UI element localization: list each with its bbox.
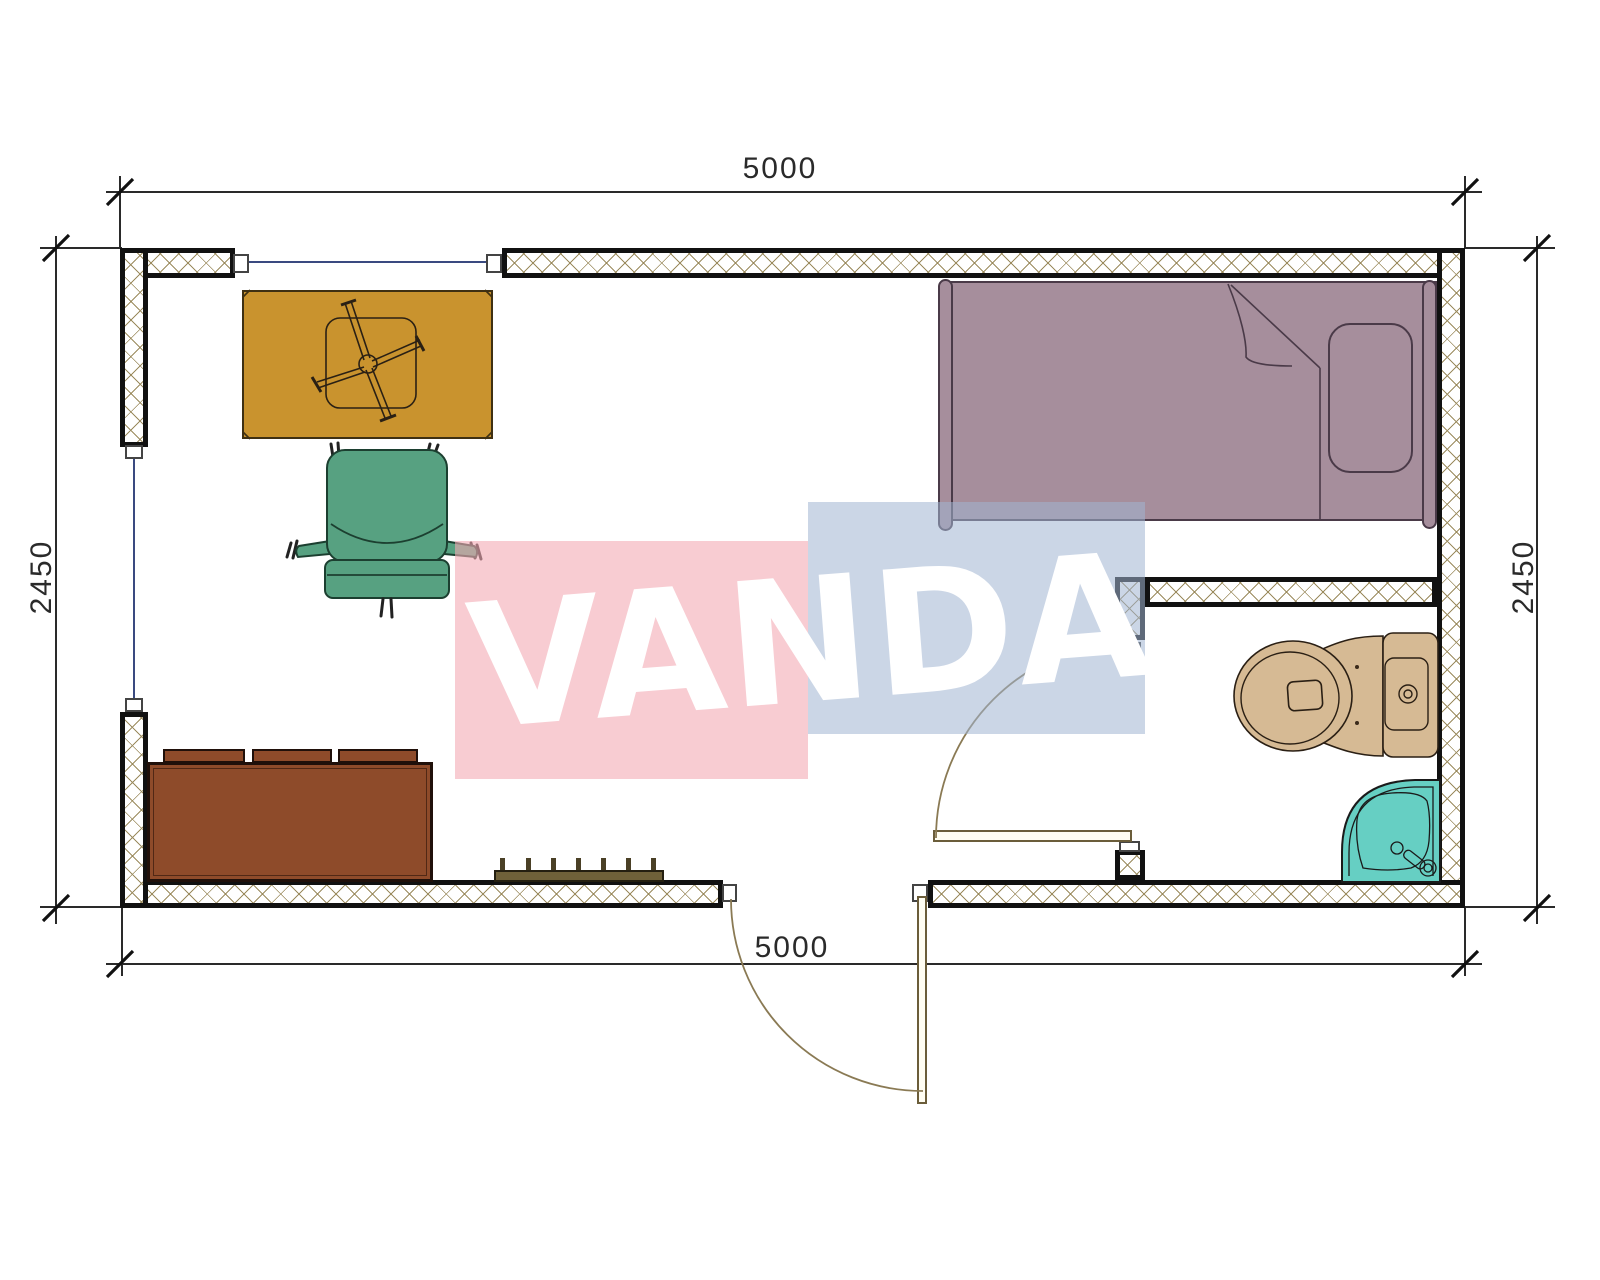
- bathroom-door-jamb: [1119, 841, 1140, 852]
- bathroom-door-leaf: [933, 830, 1132, 842]
- wall-right: [1437, 248, 1465, 908]
- extension-line: [1465, 906, 1555, 908]
- wall-bottom-right: [928, 880, 1465, 908]
- entry-door-leaf: [917, 896, 927, 1104]
- wall-left-lower: [120, 712, 148, 908]
- radiator-fin: [626, 858, 631, 870]
- desk-icon: [242, 290, 493, 439]
- extension-line: [1464, 176, 1466, 248]
- radiator-icon: [494, 870, 664, 882]
- window-frame: [486, 254, 502, 273]
- extension-line: [119, 176, 121, 248]
- wall-top-right: [502, 248, 1465, 278]
- top-dimension-line: [106, 191, 1482, 193]
- wall-bottom-left: [120, 880, 723, 908]
- sofa-cushion: [338, 749, 418, 763]
- top-dimension-label: 5000: [710, 149, 850, 189]
- window-icon: [249, 261, 487, 263]
- radiator-fin: [551, 858, 556, 870]
- radiator-fin: [576, 858, 581, 870]
- pillow-icon: [1328, 323, 1413, 473]
- wall-bathroom-stub-bottom: [1115, 850, 1145, 880]
- sofa-cushion: [163, 749, 245, 763]
- sofa-icon: [147, 762, 433, 882]
- sofa-cushion: [252, 749, 332, 763]
- bed-headboard: [1422, 280, 1437, 529]
- window-frame: [125, 445, 143, 459]
- bottom-dimension-label: 5000: [722, 928, 862, 968]
- wall-left-upper: [120, 248, 148, 447]
- wall-bathroom-north: [1145, 577, 1437, 607]
- radiator-fin: [526, 858, 531, 870]
- window-frame: [125, 698, 143, 712]
- extension-line: [121, 908, 123, 976]
- extension-line: [1465, 247, 1555, 249]
- radiator-fin: [651, 858, 656, 870]
- entry-door-jamb: [722, 884, 737, 902]
- window-frame: [233, 254, 249, 273]
- floor-plan-canvas: 5000 5000 2450 2450: [0, 0, 1600, 1280]
- office-chair-icon: [287, 443, 481, 617]
- window-icon: [133, 459, 135, 699]
- radiator-fin: [601, 858, 606, 870]
- right-dimension-label: 2450: [1504, 517, 1544, 637]
- radiator-fin: [500, 858, 505, 870]
- left-dimension-label: 2450: [22, 517, 62, 637]
- extension-line: [1464, 908, 1466, 976]
- toilet-icon: [1234, 633, 1438, 757]
- shower-icon: [1342, 780, 1440, 882]
- extension-line: [40, 247, 122, 249]
- bed-footboard: [938, 279, 953, 531]
- extension-line: [40, 906, 122, 908]
